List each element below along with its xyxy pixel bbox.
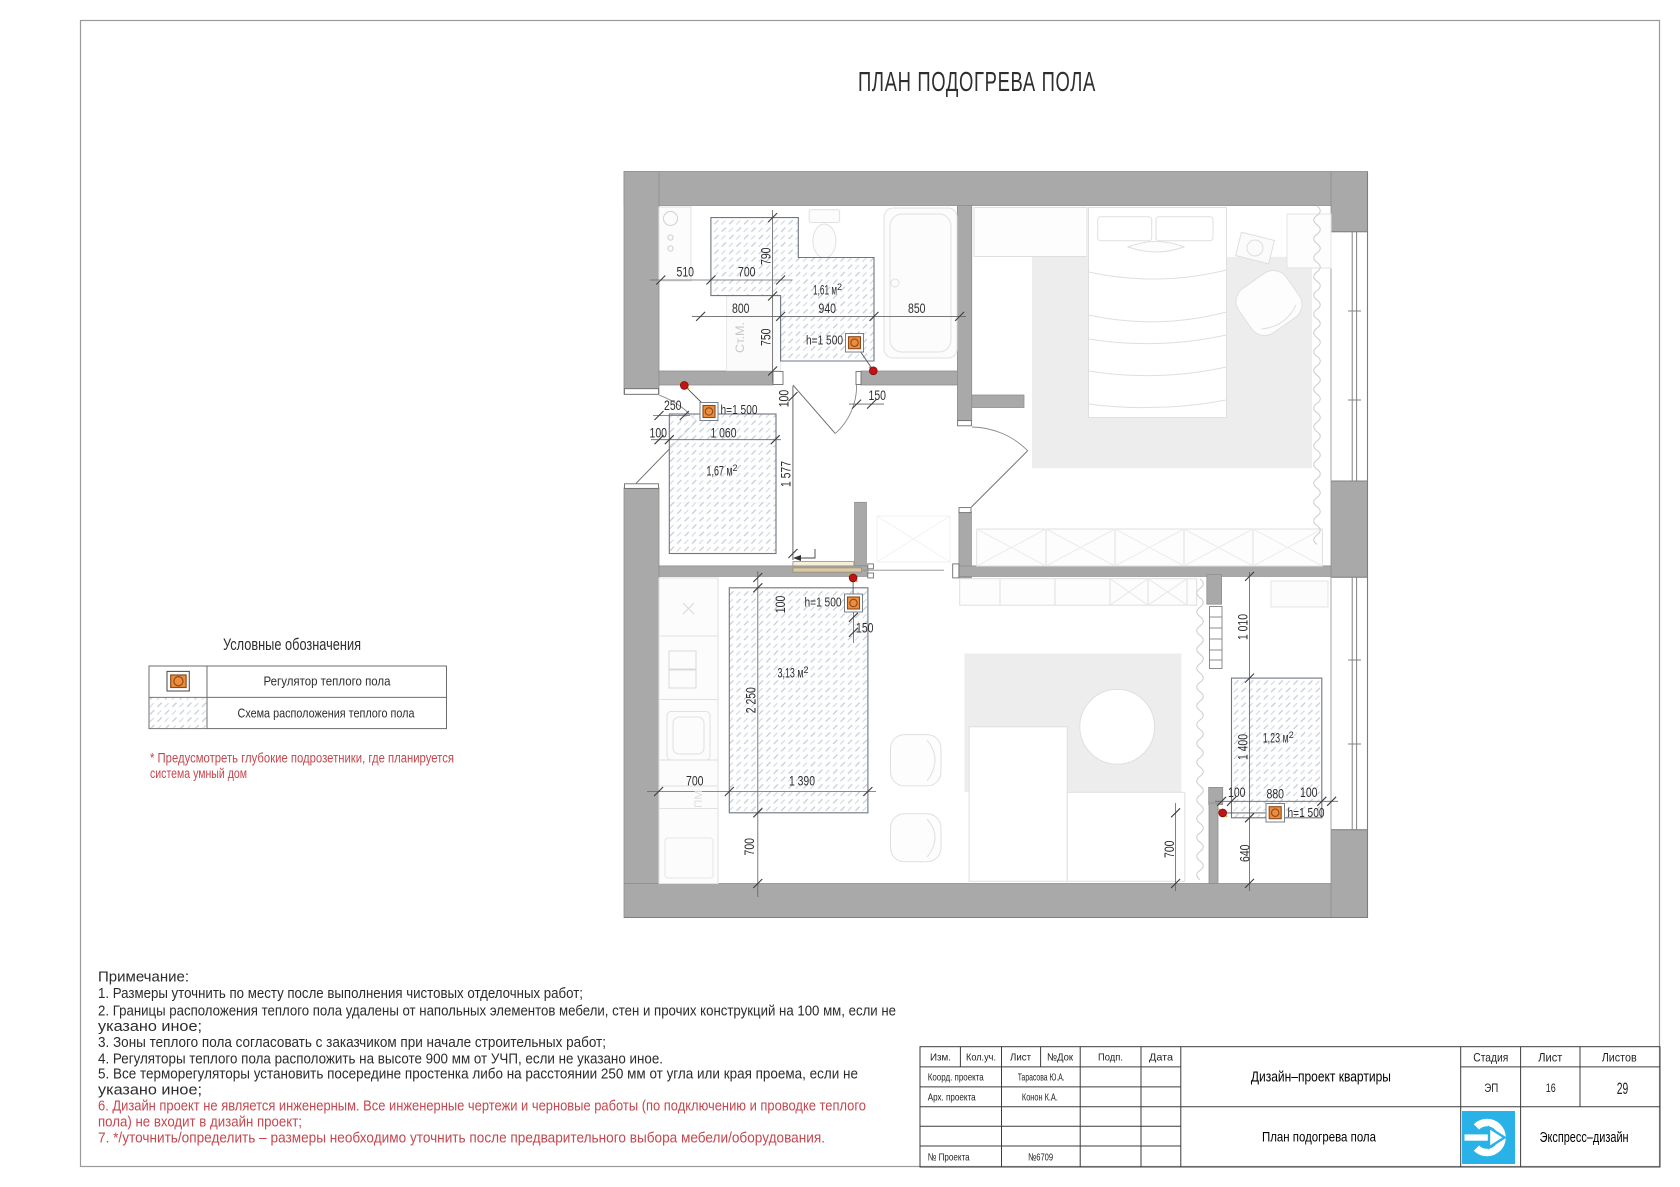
svg-text:880: 880 [1267, 786, 1285, 801]
svg-text:250: 250 [664, 398, 682, 413]
svg-text:1 010: 1 010 [1235, 614, 1250, 640]
svg-text:640: 640 [1238, 845, 1253, 863]
svg-text:№Док: №Док [1047, 1052, 1073, 1064]
svg-text:Стадия: Стадия [1473, 1051, 1508, 1065]
svg-text:№6709: №6709 [1028, 1152, 1053, 1164]
svg-text:100: 100 [1228, 785, 1246, 800]
svg-text:700: 700 [1162, 841, 1177, 859]
svg-text:940: 940 [819, 301, 837, 316]
svg-text:Ст.М.: Ст.М. [735, 322, 747, 353]
svg-text:Арх. проекта: Арх. проекта [928, 1092, 976, 1104]
svg-text:№ Проекта: № Проекта [928, 1152, 970, 1164]
svg-text:h=1 500: h=1 500 [721, 403, 758, 417]
svg-text:5. Все терморегуляторы установ: 5. Все терморегуляторы установить посере… [98, 1067, 858, 1083]
svg-text:7. */уточнить/определить – ра: 7. */уточнить/определить – размеры необх… [98, 1131, 825, 1147]
svg-text:3. Зоны теплого пола согласова: 3. Зоны теплого пола согласовать с заказ… [98, 1035, 606, 1051]
svg-text:6. Дизайн проект не является и: 6. Дизайн проект не является инженерным.… [98, 1099, 866, 1115]
svg-text:План подогрева пола: План подогрева пола [1262, 1129, 1376, 1145]
svg-text:1 577: 1 577 [779, 461, 794, 487]
svg-text:Лист: Лист [1538, 1051, 1562, 1065]
svg-text:2. Границы расположения теплог: 2. Границы расположения теплого пола уда… [98, 1004, 896, 1020]
svg-text:Экспресс–дизайн: Экспресс–дизайн [1540, 1130, 1629, 1146]
svg-text:ЭП: ЭП [1484, 1081, 1498, 1095]
svg-text:Дизайн–проект квартиры: Дизайн–проект квартиры [1251, 1069, 1391, 1086]
svg-text:700: 700 [738, 265, 756, 280]
svg-text:1. Размеры уточнить по месту п: 1. Размеры уточнить по месту после выпол… [98, 986, 583, 1002]
svg-text:1 400: 1 400 [1235, 734, 1250, 760]
svg-text:2 250: 2 250 [744, 687, 759, 713]
svg-text:ПМ: ПМ [693, 790, 705, 808]
svg-text:700: 700 [742, 838, 757, 856]
svg-text:h=1 500: h=1 500 [805, 596, 842, 610]
svg-text:Листов: Листов [1602, 1051, 1637, 1065]
svg-text:150: 150 [869, 388, 887, 403]
svg-text:1 060: 1 060 [711, 426, 737, 441]
svg-text:Примечание:: Примечание: [98, 970, 189, 986]
svg-text:29: 29 [1617, 1079, 1629, 1098]
svg-text:750: 750 [759, 329, 774, 347]
svg-text:* Предусмотреть глубокие подро: * Предусмотреть глубокие подрозетники, г… [150, 751, 454, 766]
svg-text:h=1 500: h=1 500 [806, 334, 843, 348]
svg-text:Подп.: Подп. [1098, 1052, 1123, 1064]
svg-text:Изм.: Изм. [930, 1052, 951, 1064]
svg-text:790: 790 [759, 248, 774, 266]
svg-text:150: 150 [856, 621, 874, 636]
svg-text:100: 100 [773, 596, 788, 614]
svg-text:пола) не входит в дизайн проек: пола) не входит в дизайн проект; [98, 1114, 302, 1130]
svg-text:100: 100 [1300, 785, 1318, 800]
svg-text:Тарасова Ю.А.: Тарасова Ю.А. [1018, 1072, 1065, 1084]
svg-text:4. Регуляторы теплого пола рас: 4. Регуляторы теплого пола расположить н… [98, 1051, 663, 1067]
svg-text:100: 100 [650, 426, 668, 441]
svg-text:указано иное;: указано иное; [98, 1019, 202, 1035]
svg-text:система умный дом: система умный дом [150, 766, 247, 781]
svg-text:800: 800 [732, 301, 750, 316]
svg-text:Лист: Лист [1010, 1052, 1031, 1064]
svg-text:Коорд. проекта: Коорд. проекта [928, 1072, 984, 1084]
svg-text:Дата: Дата [1149, 1052, 1173, 1064]
svg-text:16: 16 [1546, 1081, 1556, 1095]
svg-text:850: 850 [908, 301, 926, 316]
svg-text:1 390: 1 390 [789, 773, 815, 788]
svg-text:Кол.уч.: Кол.уч. [966, 1052, 996, 1064]
svg-text:100: 100 [777, 390, 792, 408]
svg-text:Схема расположения теплого пол: Схема расположения теплого пола [238, 706, 416, 721]
svg-text:700: 700 [686, 773, 704, 788]
svg-text:h=1 500: h=1 500 [1288, 806, 1325, 820]
svg-text:Условные обозначения: Условные обозначения [223, 636, 361, 654]
svg-text:Регулятор теплого пола: Регулятор теплого пола [264, 674, 392, 689]
svg-text:510: 510 [677, 265, 695, 280]
svg-text:указано иное;: указано иное; [98, 1082, 202, 1098]
svg-text:Конон К.А.: Конон К.А. [1022, 1092, 1058, 1104]
svg-text:ПЛАН ПОДОГРЕВА ПОЛА: ПЛАН ПОДОГРЕВА ПОЛА [858, 66, 1096, 97]
